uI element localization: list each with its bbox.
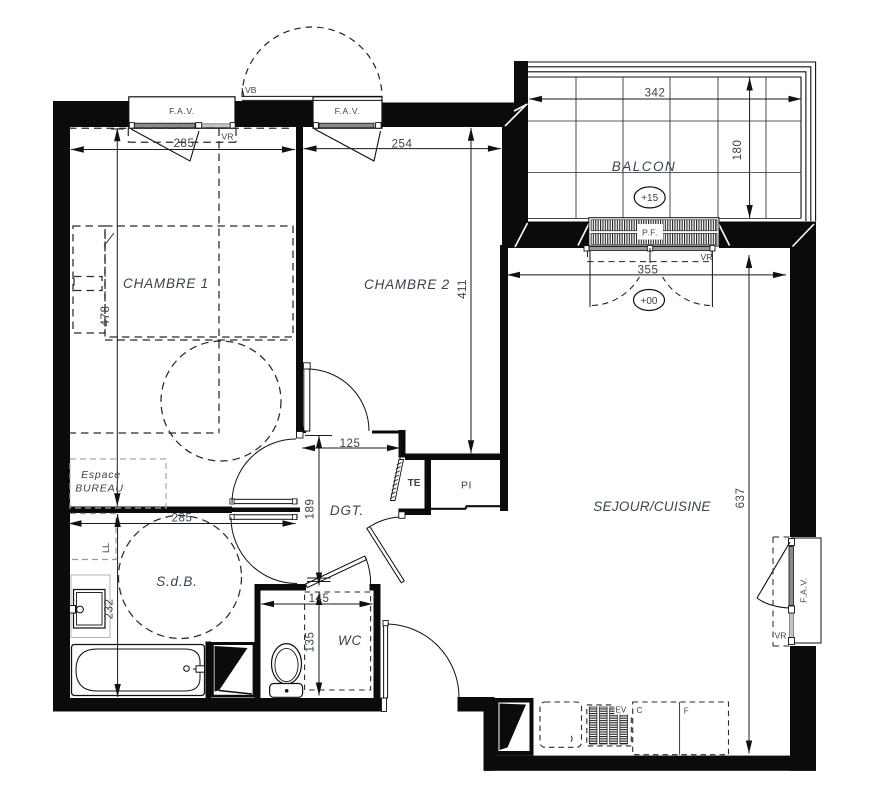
svg-text:232: 232 bbox=[104, 599, 116, 620]
svg-text:SEJOUR/CUISINE: SEJOUR/CUISINE bbox=[593, 499, 711, 514]
svg-text:PI: PI bbox=[461, 480, 472, 492]
svg-text:S.d.B.: S.d.B. bbox=[156, 574, 198, 589]
svg-text:135: 135 bbox=[305, 632, 317, 653]
svg-text:285: 285 bbox=[174, 138, 195, 150]
svg-text:180: 180 bbox=[732, 140, 744, 161]
svg-text:BALCON: BALCON bbox=[612, 159, 677, 174]
svg-text:189: 189 bbox=[305, 499, 317, 520]
svg-text:P.F.: P.F. bbox=[642, 228, 658, 238]
svg-text:CHAMBRE 2: CHAMBRE 2 bbox=[364, 277, 450, 292]
svg-text:EV: EV bbox=[616, 706, 627, 715]
svg-text:637: 637 bbox=[735, 488, 747, 509]
svg-text:342: 342 bbox=[645, 88, 666, 100]
svg-text:355: 355 bbox=[638, 265, 659, 277]
svg-text:F.A.V.: F.A.V. bbox=[169, 106, 195, 116]
svg-text:VR: VR bbox=[222, 132, 234, 142]
svg-text:C: C bbox=[637, 706, 643, 715]
svg-text:+15: +15 bbox=[641, 193, 658, 204]
svg-text:VR: VR bbox=[775, 631, 787, 641]
svg-text:TE: TE bbox=[408, 478, 421, 489]
svg-text:145: 145 bbox=[309, 593, 330, 605]
svg-text:BUREAU: BUREAU bbox=[75, 483, 124, 495]
svg-text:VB: VB bbox=[245, 85, 257, 95]
svg-text:F.A.V.: F.A.V. bbox=[799, 577, 809, 603]
svg-text:+00: +00 bbox=[641, 296, 658, 307]
svg-text:WC: WC bbox=[338, 633, 362, 648]
svg-text:F.A.V.: F.A.V. bbox=[335, 106, 361, 116]
svg-text:285: 285 bbox=[172, 513, 193, 525]
svg-text:CHAMBRE 1: CHAMBRE 1 bbox=[123, 276, 209, 291]
svg-text:411: 411 bbox=[457, 279, 469, 299]
svg-text:478: 478 bbox=[100, 306, 112, 327]
svg-text:Espace: Espace bbox=[81, 469, 121, 481]
svg-text:F: F bbox=[684, 707, 689, 716]
svg-text:DGT.: DGT. bbox=[330, 503, 364, 518]
svg-text:VR: VR bbox=[701, 252, 713, 262]
svg-text:125: 125 bbox=[340, 438, 361, 450]
svg-text:254: 254 bbox=[392, 139, 413, 151]
svg-text:LL: LL bbox=[101, 543, 111, 553]
